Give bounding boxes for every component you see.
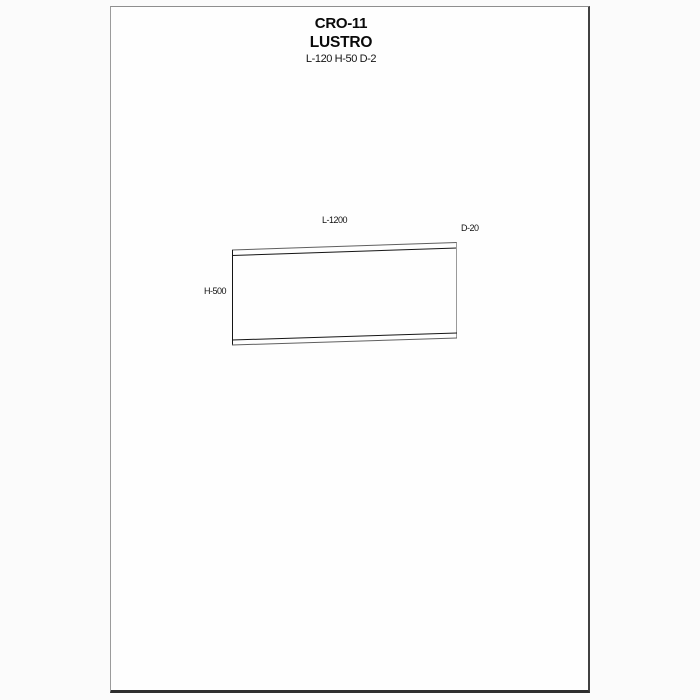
product-header: CRO-11 LUSTRO L-120 H-50 D-2 [110,15,572,66]
dimension-label-depth: D-20 [461,223,479,233]
product-model-code: CRO-11 [110,15,572,33]
dimension-label-length: L-1200 [322,215,347,225]
catalog-background: CRO-11 LUSTRO L-120 H-50 D-2 L-1200 D-20… [0,0,700,700]
product-sheet [110,6,590,693]
dimension-label-height: H-500 [204,286,226,296]
product-name: LUSTRO [110,33,572,52]
product-dimensions-summary: L-120 H-50 D-2 [110,53,572,66]
